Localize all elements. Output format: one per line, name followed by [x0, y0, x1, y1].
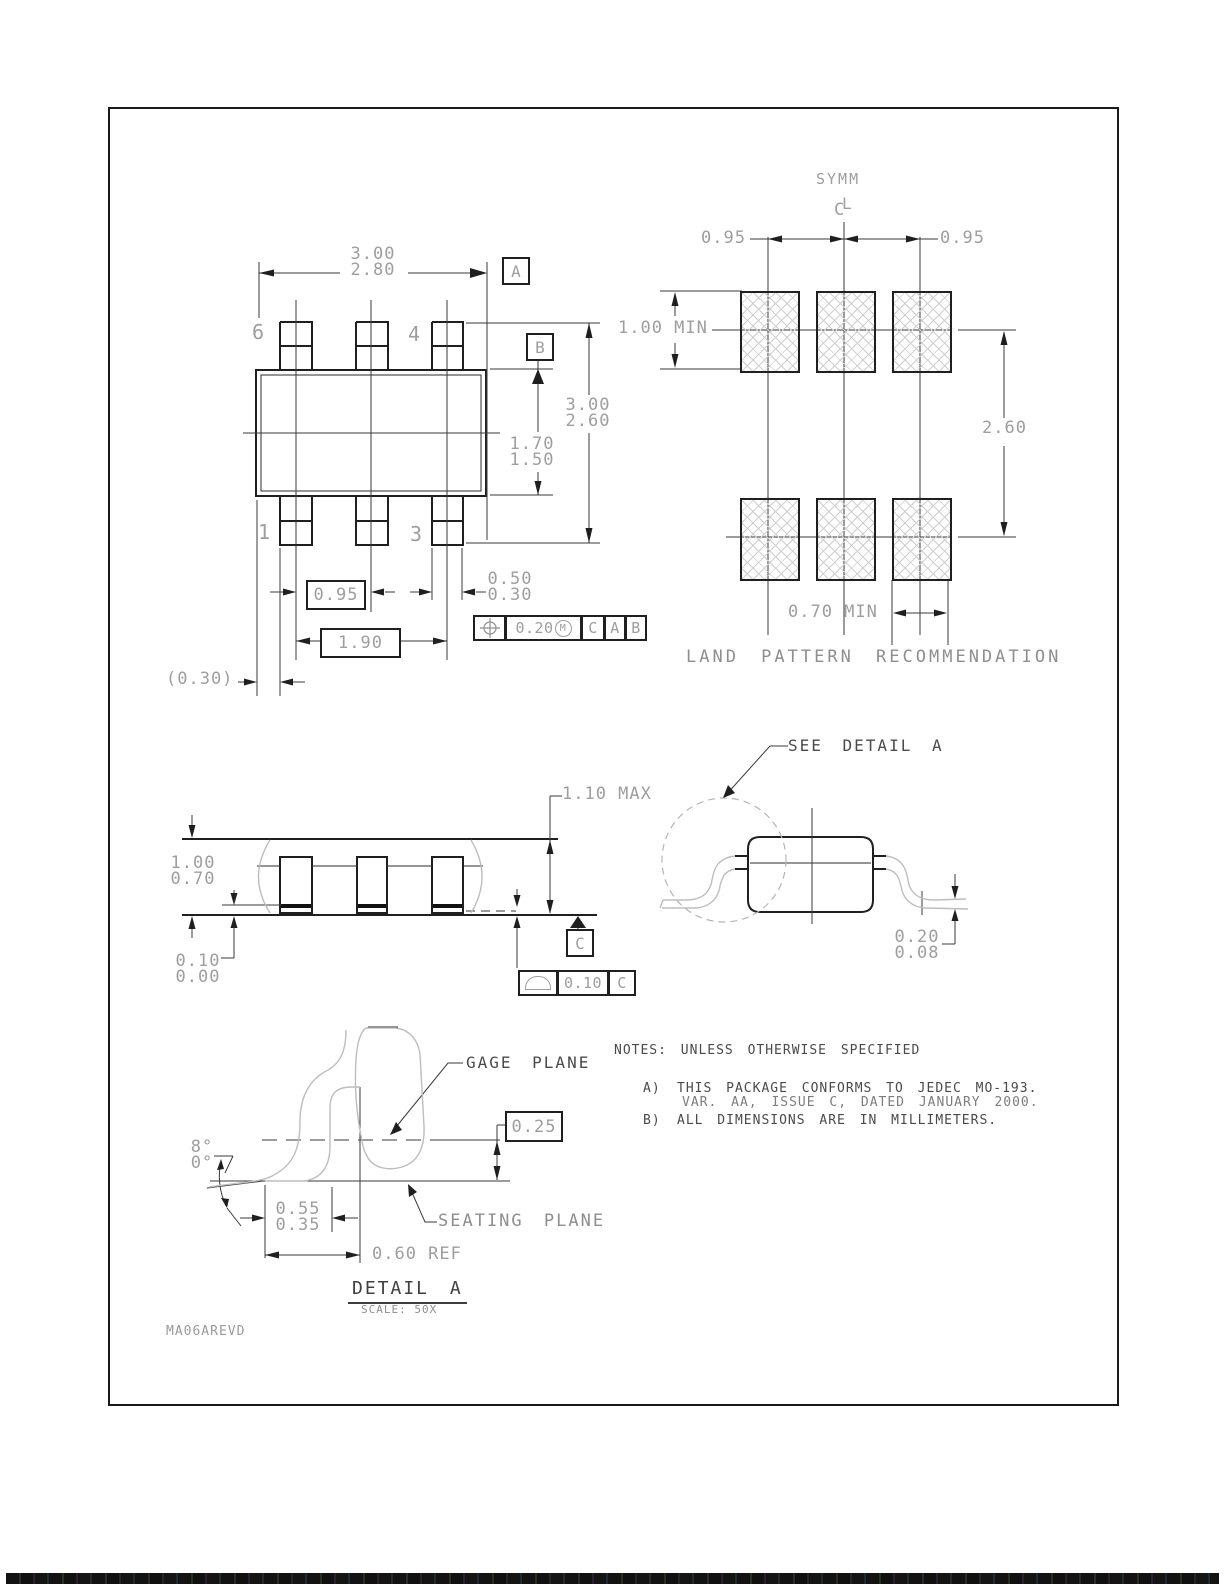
- land-pattern-title: LAND PATTERN RECOMMENDATION: [686, 647, 1061, 667]
- centerline-l: L: [842, 194, 852, 213]
- datum-c-box: C: [566, 929, 594, 957]
- dim-overall-height: 3.00 2.60: [564, 397, 612, 429]
- drawing-code: MA06AREVD: [166, 1324, 245, 1339]
- dim-foot-length-min: 0.35: [274, 1217, 322, 1233]
- pin-6-label: 6: [252, 320, 264, 344]
- dim-body-thickness: 1.00 0.70: [170, 855, 216, 887]
- position-symbol-icon: [473, 615, 506, 641]
- dim-body-width-min: 2.80: [345, 262, 401, 278]
- symm-label: SYMM: [816, 170, 860, 188]
- fcf-tolerance-value: 0.20: [515, 619, 553, 637]
- dim-foot-length: 0.55 0.35: [274, 1201, 322, 1233]
- dim-body-height: 1.70 1.50: [508, 436, 556, 468]
- dim-body-width: 3.00 2.80: [345, 246, 401, 278]
- dim-span-value: 1.90: [338, 633, 383, 653]
- dim-lead-angle-min: 0°: [188, 1155, 216, 1171]
- dim-standoff: 0.10 0.00: [175, 953, 221, 985]
- datum-a-label: A: [511, 262, 521, 281]
- dim-gage-offset-box: 0.25: [505, 1111, 563, 1142]
- land-pad-bottom-3: [892, 498, 952, 581]
- note-b-line1: ALL DIMENSIONS ARE IN MILLIMETERS.: [677, 1113, 997, 1128]
- surface-profile-symbol-icon: [518, 970, 558, 996]
- land-pad-bottom-1: [740, 498, 800, 581]
- fcf-flatness: 0.10 C: [518, 970, 636, 996]
- gage-plane-label: GAGE PLANE: [466, 1053, 590, 1072]
- detail-a-scale: SCALE: 50X: [361, 1303, 437, 1316]
- fcf-tolerance-cell: 0.20 M: [506, 615, 582, 641]
- dim-gage-offset-value: 0.25: [512, 1117, 557, 1137]
- dim-span-box: 1.90: [320, 628, 401, 658]
- note-a-line1: THIS PACKAGE CONFORMS TO JEDEC MO-193.: [677, 1081, 1037, 1096]
- dim-pitch-right: 0.95: [940, 230, 985, 246]
- pin-4-label: 4: [408, 322, 420, 346]
- dim-pitch-left: 0.95: [701, 230, 746, 246]
- mmc-modifier-icon: M: [555, 620, 572, 637]
- fcf-datum-1: C: [582, 615, 605, 641]
- land-pad-top-2: [816, 291, 876, 373]
- detail-a-title: DETAIL A: [348, 1278, 467, 1304]
- land-pad-bottom-2: [816, 498, 876, 581]
- note-b-label: B): [643, 1113, 661, 1128]
- dim-edge-ref: (0.30): [166, 671, 233, 687]
- pin-3-label: 3: [410, 522, 422, 546]
- dim-pitch-value: 0.95: [314, 585, 359, 605]
- datum-b-box: B: [526, 333, 554, 361]
- centerline-symbol-icon: C L: [834, 194, 858, 220]
- seating-plane-label: SEATING PLANE: [438, 1213, 605, 1229]
- datum-b-label: B: [535, 338, 545, 357]
- dim-lead-width: 0.50 0.30: [486, 571, 534, 603]
- land-pad-top-3: [892, 291, 952, 373]
- dim-overall-height-min: 2.60: [564, 413, 612, 429]
- note-a-label: A): [643, 1081, 661, 1096]
- notes-header: NOTES: UNLESS OTHERWISE SPECIFIED: [614, 1043, 920, 1058]
- note-a-line2: VAR. AA, ISSUE C, DATED JANUARY 2000.: [682, 1095, 1039, 1110]
- dim-body-thickness-min: 0.70: [170, 871, 216, 887]
- dim-lead-thickness: 0.20 0.08: [894, 929, 940, 961]
- dim-height-max: 1.10 MAX: [562, 786, 652, 802]
- dim-pad-height: 1.00 MIN: [618, 320, 708, 336]
- scan-artifact-strip: [6, 1573, 1219, 1584]
- fcf-position: 0.20 M C A B: [473, 615, 647, 641]
- dim-lead-width-min: 0.30: [486, 587, 534, 603]
- dim-lead-thickness-min: 0.08: [894, 945, 940, 961]
- dim-standoff-min: 0.00: [175, 969, 221, 985]
- dim-pitch-box: 0.95: [306, 580, 366, 610]
- fcf-flatness-datum: C: [609, 970, 636, 996]
- fcf-datum-3: B: [626, 615, 647, 641]
- datum-c-label: C: [575, 934, 585, 953]
- dim-pad-width: 0.70 MIN: [788, 604, 878, 620]
- dim-lead-angle: 8° 0°: [188, 1139, 216, 1171]
- fcf-datum-2: A: [605, 615, 626, 641]
- drawing-sheet: 3.00 2.80 A 6 4 B 1.70 1.50 3.00 2.60 1 …: [0, 0, 1225, 1585]
- dim-row-span: 2.60: [982, 420, 1027, 436]
- datum-a-box: A: [502, 257, 530, 285]
- see-detail-a-label: SEE DETAIL A: [788, 736, 944, 755]
- land-pad-top-1: [740, 291, 800, 373]
- dim-body-height-min: 1.50: [508, 452, 556, 468]
- dim-foot-ref: 0.60 REF: [372, 1246, 462, 1262]
- pin-1-label: 1: [258, 520, 270, 544]
- fcf-flatness-tolerance: 0.10: [558, 970, 609, 996]
